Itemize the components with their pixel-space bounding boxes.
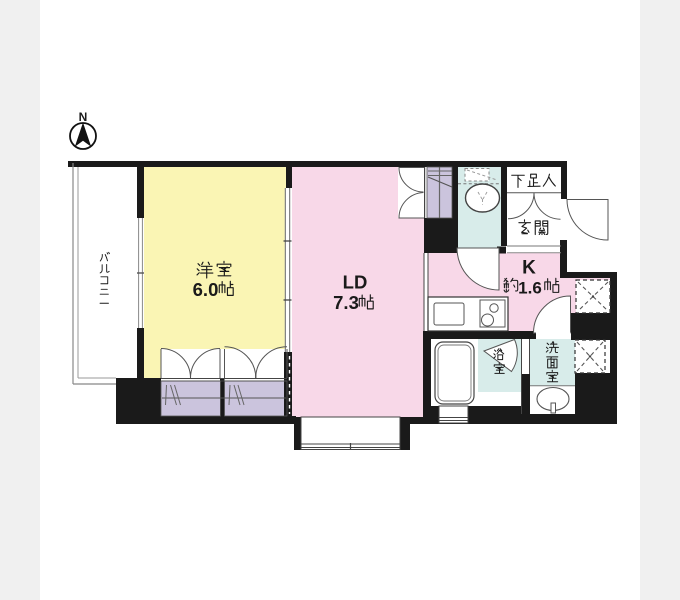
svg-text:7.3: 7.3: [333, 292, 359, 313]
svg-text:6.0: 6.0: [193, 279, 219, 300]
svg-text:K: K: [522, 258, 536, 279]
svg-text:LD: LD: [343, 272, 368, 293]
svg-text:1.6: 1.6: [518, 279, 542, 298]
svg-text:N: N: [79, 110, 88, 124]
